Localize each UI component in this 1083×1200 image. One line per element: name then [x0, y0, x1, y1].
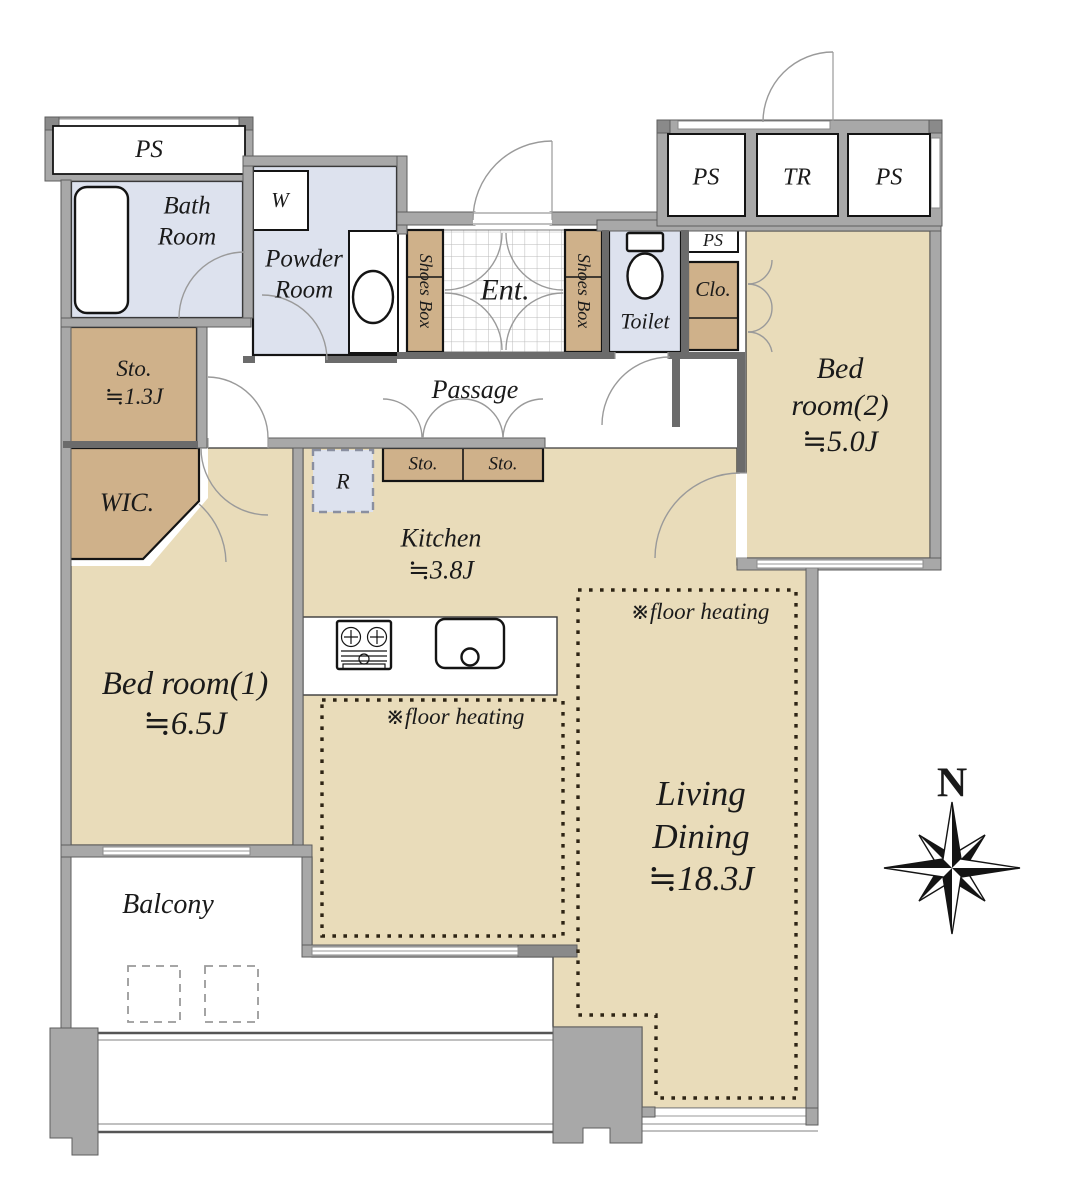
- balcony-dashed-square: [128, 966, 180, 1022]
- bedroom2-floor: [746, 231, 930, 558]
- stove-icon: [337, 621, 391, 669]
- balcony-dashed-square: [205, 966, 258, 1022]
- ps-small-box: [688, 230, 738, 252]
- ps-tr-ps-block: [657, 120, 942, 226]
- storage-1-3j-box: [70, 327, 197, 443]
- kitchen-counter: [303, 617, 557, 695]
- sink-icon: [436, 619, 504, 668]
- closet-box: [688, 262, 738, 350]
- balcony-pillar-left: [50, 1028, 98, 1155]
- floorplan-graphics: [0, 0, 1083, 1200]
- bathtub-icon: [75, 187, 128, 313]
- shoes-box-right: [565, 230, 602, 352]
- kitchen-living-floor: [303, 448, 807, 1108]
- refrigerator-box: [313, 450, 373, 512]
- balcony-pillar-right: [553, 1027, 642, 1143]
- entrance-tile-floor: [443, 230, 565, 352]
- shoes-box-left: [407, 230, 443, 352]
- washer-box: [253, 171, 308, 230]
- compass-rose: [884, 802, 1020, 934]
- basin-icon: [353, 271, 393, 323]
- floorplan: PS Bath Room W Powder Room Shoes Box Ent…: [0, 0, 1083, 1200]
- toilet-icon: [627, 233, 663, 299]
